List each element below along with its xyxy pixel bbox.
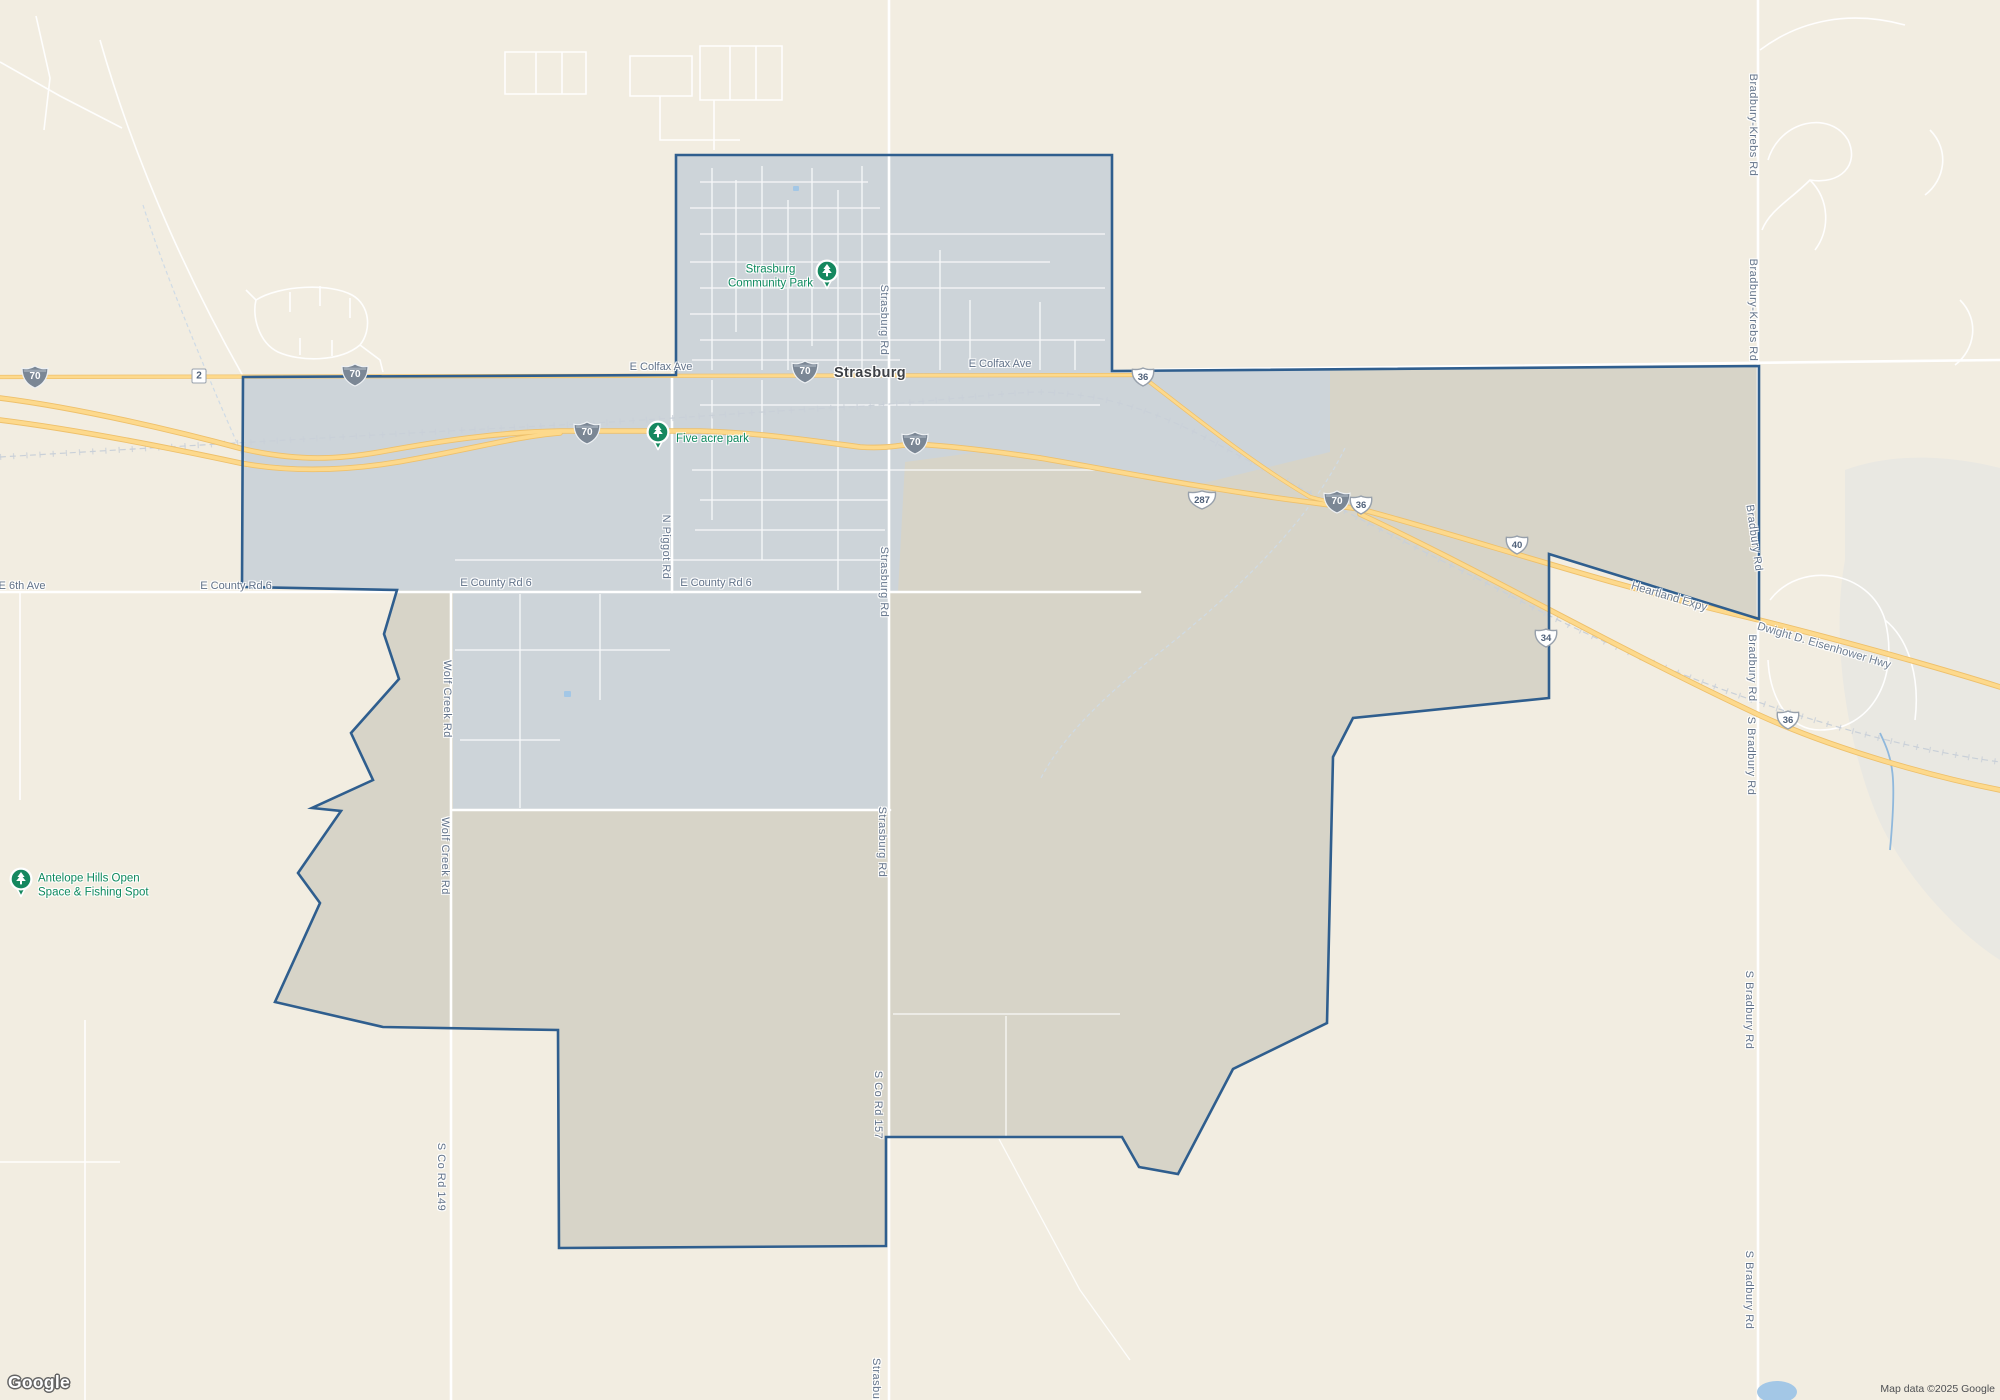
park-label-line2: Community Park xyxy=(728,277,813,291)
tree-icon xyxy=(814,259,840,290)
us-34-shield: 34 xyxy=(1534,628,1558,648)
us-287-shield: 287 xyxy=(1187,490,1217,510)
google-logo[interactable]: Google xyxy=(8,1372,70,1393)
road-label-wolf-creek-rd-s: Wolf Creek Rd xyxy=(439,817,451,895)
road-label-e-county-rd6-e: E County Rd 6 xyxy=(680,577,752,589)
tree-icon xyxy=(645,420,671,451)
us-36-shield: 36 xyxy=(1349,495,1373,515)
road-label-strasburg-rd-m: Strasburg Rd xyxy=(878,547,890,618)
interstate-70-shield: 70 xyxy=(791,360,819,384)
park-label-line1: Antelope Hills Open xyxy=(38,872,149,886)
road-label-e-colfax-ave-w: E Colfax Ave xyxy=(630,361,693,373)
road-label-s-bradbury-rd-s: S Bradbury Rd xyxy=(1743,1251,1755,1330)
road-label-e-county-rd6-m: E County Rd 6 xyxy=(460,577,532,589)
interstate-70-shield: 70 xyxy=(1323,490,1351,514)
road-label-e-6th-ave: E 6th Ave xyxy=(0,580,45,592)
park-label-antelope-hills[interactable]: Antelope Hills Open Space & Fishing Spot xyxy=(38,872,149,901)
map-attribution[interactable]: Map data ©2025 Google xyxy=(1880,1383,1995,1395)
road-label-bradbury-rd: Bradbury Rd xyxy=(1746,634,1758,701)
city-label-strasburg[interactable]: Strasburg xyxy=(834,365,906,381)
road-label-s-co-rd-149: S Co Rd 149 xyxy=(435,1143,447,1211)
tree-icon xyxy=(8,867,34,898)
interstate-70-shield: 70 xyxy=(341,363,369,387)
road-label-wolf-creek-rd-n: Wolf Creek Rd xyxy=(441,660,453,738)
park-pin-five-acre-park[interactable] xyxy=(645,420,671,451)
map-canvas[interactable]: E Colfax Ave E Colfax Ave E 6th Ave E Co… xyxy=(0,0,2000,1400)
road-label-strasburg-rd-s: Strasburg Rd xyxy=(876,807,888,878)
interstate-70-shield: 70 xyxy=(21,365,49,389)
interstate-70-shield: 70 xyxy=(901,431,929,455)
road-label-s-co-rd-157: S Co Rd 157 xyxy=(872,1071,884,1139)
road-label-strasburg-rd-n: Strasburg Rd xyxy=(878,285,890,356)
park-pin-strasburg-community-park[interactable] xyxy=(814,259,840,290)
park-pin-antelope-hills[interactable] xyxy=(8,867,34,898)
road-label-bradbury-krebs-s: Bradbury-Krebs Rd xyxy=(1747,259,1759,362)
interstate-70-shield: 70 xyxy=(573,421,601,445)
park-label-strasburg-community-park[interactable]: Strasburg Community Park xyxy=(728,263,813,292)
road-label-e-county-rd6-w: E County Rd 6 xyxy=(200,580,272,592)
road-label-e-colfax-ave-e: E Colfax Ave xyxy=(969,358,1032,370)
us-40-shield: 40 xyxy=(1505,535,1529,555)
park-label-line2: Space & Fishing Spot xyxy=(38,886,149,900)
state-route-2-shield: 2 xyxy=(192,369,207,384)
park-label-five-acre-park[interactable]: Five acre park xyxy=(676,432,749,446)
park-label-line1: Strasburg xyxy=(728,263,813,277)
road-label-s-bradbury-rd-m: S Bradbury Rd xyxy=(1743,971,1755,1050)
road-label-bradbury-krebs-n: Bradbury-Krebs Rd xyxy=(1747,74,1759,177)
road-label-s-bradbury-rd-n: S Bradbury Rd xyxy=(1745,717,1757,796)
road-label-n-piggot-rd: N Piggot Rd xyxy=(660,515,672,580)
basemap-svg xyxy=(0,0,2000,1400)
us-36-shield: 36 xyxy=(1131,367,1155,387)
us-36-shield: 36 xyxy=(1776,710,1800,730)
road-label-strasburg-rd-bottom: Strasburg Rd xyxy=(870,1358,882,1400)
